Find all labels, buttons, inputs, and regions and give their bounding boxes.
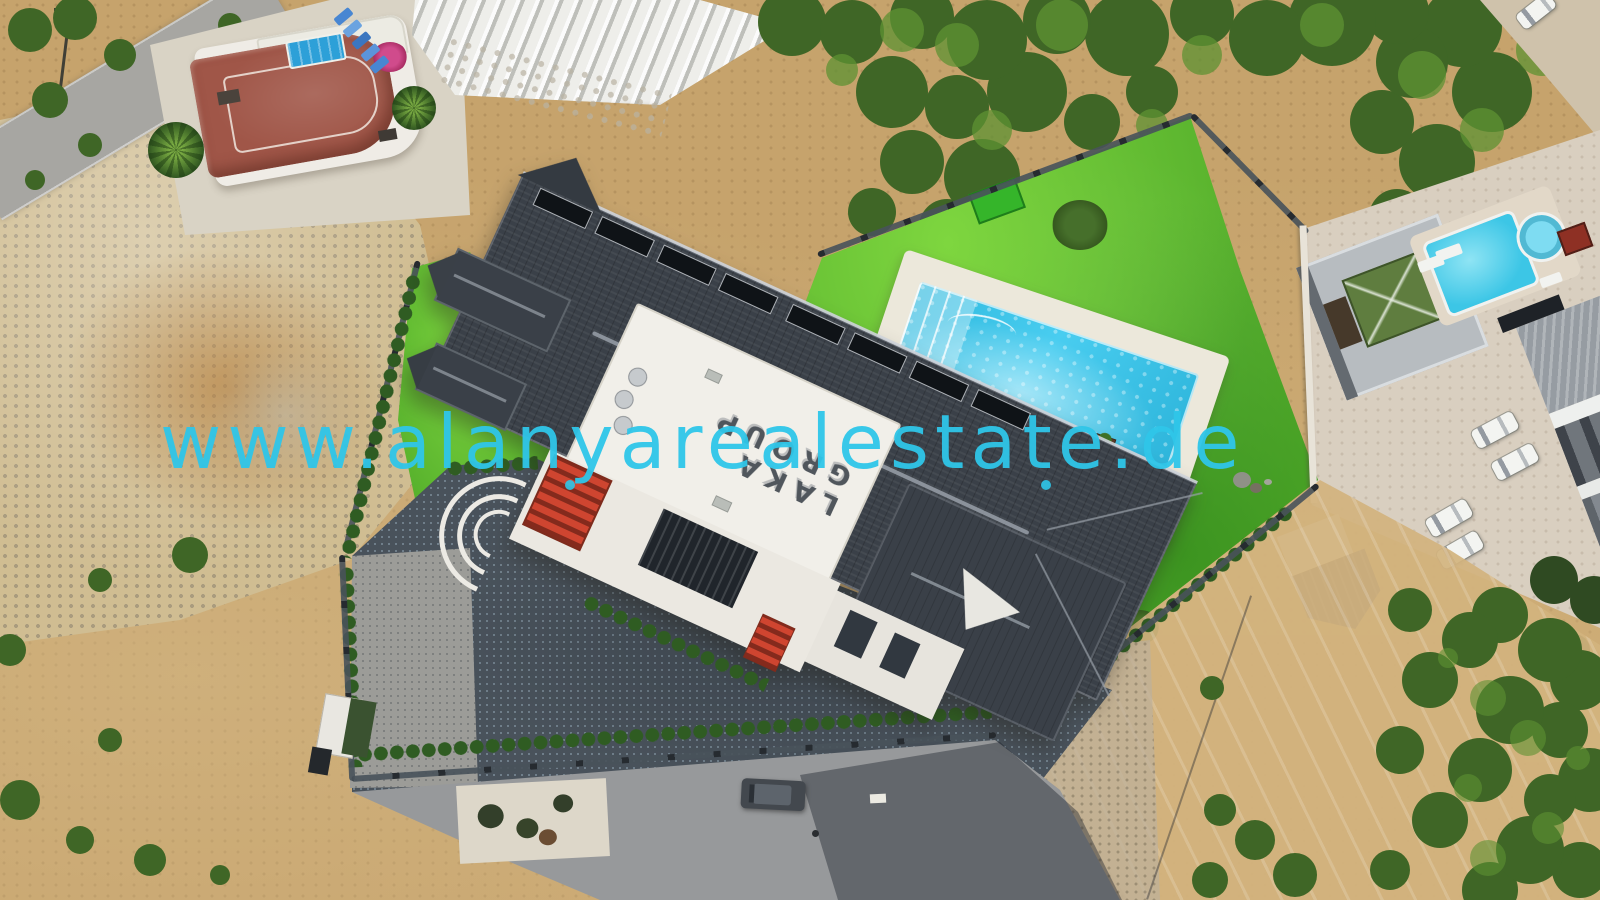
palm-tree [148, 122, 204, 178]
roof-vent [704, 368, 723, 384]
vegetation-bottom-right [1442, 612, 1498, 668]
pad-plant [477, 804, 504, 829]
orchard-trees-highlight [880, 8, 924, 52]
watermark-text: www.alanyarealestate.de [160, 398, 1460, 486]
pedestrian [812, 830, 819, 837]
road-marking [870, 794, 886, 804]
pad-soil [538, 829, 557, 846]
entrance-pad [456, 778, 610, 864]
overhanging-tree [1052, 200, 1108, 250]
utility-pole-crossarm [54, 8, 76, 11]
roof-vent [711, 495, 732, 513]
watermark-dot [1041, 480, 1051, 490]
palm-tree [392, 86, 436, 130]
utility-pole [58, 0, 72, 94]
pad-plant [516, 818, 539, 839]
vegetation-highlight [1470, 680, 1506, 716]
gate-posts [308, 746, 332, 775]
roadside-trees [8, 8, 52, 52]
watermark-dot [565, 480, 575, 490]
pad-plant [553, 794, 574, 813]
orchard-trees [820, 0, 884, 64]
parked-car-dark [740, 778, 805, 811]
car-windshield [749, 784, 755, 802]
aerial-photo-scene: LAKA GROUP www.alanyarealestate.de [0, 0, 1600, 900]
dark-trees-neighbor [1530, 556, 1578, 604]
bushes-bottom-left [0, 780, 40, 820]
car-roof [753, 784, 792, 806]
